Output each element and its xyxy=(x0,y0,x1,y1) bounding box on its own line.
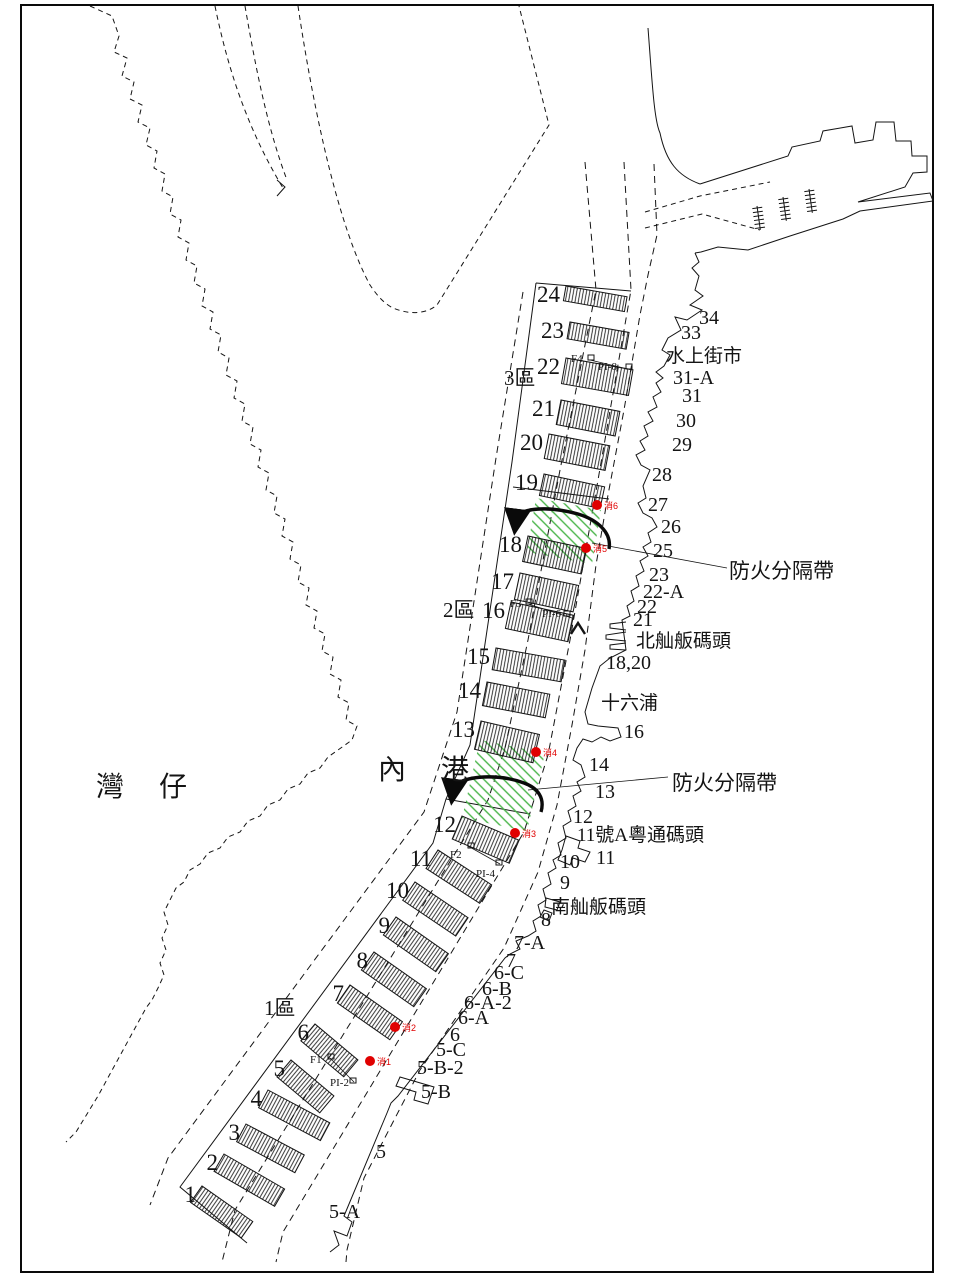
pier-number-label: 21 xyxy=(532,396,555,421)
channel-caret-mark xyxy=(571,623,585,634)
fire-hydrant-label: 消3 xyxy=(522,828,536,839)
shore-label: 8 xyxy=(541,909,551,931)
fire-hydrant-dot xyxy=(390,1022,400,1032)
pier-bar-7 xyxy=(337,985,402,1040)
shore-label: 27 xyxy=(648,494,668,516)
harbour-basin-dashed-outline xyxy=(298,6,549,313)
shore-label: 30 xyxy=(676,410,696,432)
shore-label: 9 xyxy=(560,872,570,894)
pier-bar-8 xyxy=(361,952,426,1007)
facility-label: F1 xyxy=(310,1054,322,1066)
fire-hydrant-dot xyxy=(365,1056,375,1066)
pier-number-label: 13 xyxy=(452,717,475,742)
pier-number-label: 6 xyxy=(298,1020,310,1045)
pier-number-label: 19 xyxy=(515,470,538,495)
shore-label: 北舢舨碼頭 xyxy=(636,630,731,652)
northeast-reclaimed-land-outline xyxy=(695,122,933,253)
facility-label: PI-2 xyxy=(330,1077,349,1089)
sea-area-label: 內 港 xyxy=(378,754,483,786)
pier-number-label: 12 xyxy=(433,812,456,837)
facility-label: F4 xyxy=(571,353,583,365)
pier-bar-14 xyxy=(482,682,549,718)
pier-number-label: 5 xyxy=(274,1056,286,1081)
facility-label: PI-8 xyxy=(598,361,617,373)
shore-label: 26 xyxy=(661,516,681,538)
fire-hydrant-label: 消1 xyxy=(377,1056,391,1067)
sea-area-label: 灣 仔 xyxy=(96,771,201,803)
wanzai-coastline xyxy=(66,6,357,1142)
pier-number-label: 11 xyxy=(410,846,432,871)
pier-bar-20 xyxy=(544,434,610,470)
shore-label: 18,20 xyxy=(606,652,651,674)
shore-label: 25 xyxy=(653,540,673,562)
pier-bar-6 xyxy=(301,1024,358,1077)
pier-number-label: 22 xyxy=(537,354,560,379)
shore-label: 11 xyxy=(596,847,615,869)
pier-number-label: 2 xyxy=(207,1150,219,1175)
pier-number-label: 24 xyxy=(537,282,561,307)
pier-number-label: 8 xyxy=(357,948,369,973)
fire-hydrant-dot xyxy=(592,500,602,510)
shore-label: 5 xyxy=(376,1141,386,1163)
shore-label: 5-A xyxy=(329,1201,361,1223)
harbour-plan-drawing: 2423222120191817161514131211109876543213… xyxy=(0,0,956,1283)
stairs-icon xyxy=(778,196,791,221)
facility-label: F2 xyxy=(450,849,462,861)
zone-label: 1區 xyxy=(264,996,296,1020)
channel-dashed-line-west xyxy=(215,6,283,188)
northeast-road-dashed-2 xyxy=(645,214,760,230)
shore-label: 28 xyxy=(652,464,672,486)
pier-bar-21 xyxy=(556,400,620,436)
pier-number-label: 18 xyxy=(499,532,522,557)
pier-bar-9 xyxy=(383,917,448,972)
shore-label: 5-B xyxy=(421,1081,451,1103)
pier-number-label: 17 xyxy=(491,569,514,594)
firebreak-label: 防火分隔帶 xyxy=(672,771,777,795)
facility-label: F3 xyxy=(510,598,522,610)
shore-label: 29 xyxy=(672,434,692,456)
shore-label: 16 xyxy=(624,721,644,743)
fire-hydrant-label: 消4 xyxy=(543,747,557,758)
firebreak-label: 防火分隔帶 xyxy=(729,559,834,583)
zone-label: 3區 xyxy=(504,366,536,390)
channel-end-hook xyxy=(277,180,285,196)
stairs-icon xyxy=(752,205,765,230)
shore-label: 十六浦 xyxy=(601,692,658,714)
facility-label: PI-4 xyxy=(476,868,495,880)
shore-label: 6-A xyxy=(458,1007,490,1029)
map-border xyxy=(21,5,933,1272)
fire-hydrant-label: 消2 xyxy=(402,1022,416,1033)
shore-label: 7-A xyxy=(514,932,546,954)
fire-hydrant-label: 消5 xyxy=(593,543,607,554)
channel-dashed-line-east xyxy=(245,6,287,180)
pier-number-label: 1 xyxy=(185,1182,197,1207)
pier-number-label: 4 xyxy=(251,1086,263,1111)
northeast-road-dashed-1 xyxy=(645,182,770,212)
pier-bar-3 xyxy=(237,1124,305,1173)
shore-label: 14 xyxy=(589,754,609,776)
valve-icon xyxy=(588,355,594,360)
pier-number-label: 20 xyxy=(520,430,543,455)
shore-label: 31 xyxy=(682,385,702,407)
shore-label: 34 xyxy=(699,307,719,329)
shore-label: 5-B-2 xyxy=(417,1057,464,1079)
pier-number-label: 23 xyxy=(541,318,564,343)
pier-number-label: 10 xyxy=(386,878,409,903)
stairs-icon xyxy=(804,188,817,213)
pier-number-label: 9 xyxy=(379,913,391,938)
fire-hydrant-dot xyxy=(510,828,520,838)
pier-number-label: 3 xyxy=(229,1120,241,1145)
shore-label: 33 xyxy=(681,322,701,344)
pier-bar-1 xyxy=(191,1186,253,1238)
inner-harbour-pier-map: 2423222120191817161514131211109876543213… xyxy=(0,0,956,1283)
pier-bar-10 xyxy=(403,882,468,936)
shore-label: 13 xyxy=(595,781,615,803)
pier-number-label: 15 xyxy=(467,644,490,669)
northeast-shore-curve xyxy=(648,28,700,184)
shore-label: 水上街市 xyxy=(666,345,742,367)
pier-bar-23 xyxy=(567,322,629,349)
facility-label: PI-6 xyxy=(542,608,561,620)
fire-hydrant-label: 消6 xyxy=(604,500,618,511)
fire-hydrant-dot xyxy=(531,747,541,757)
shore-label: 21 xyxy=(633,609,653,631)
shore-label: 10 xyxy=(560,851,580,873)
shore-label: 南舢舨碼頭 xyxy=(551,896,646,918)
zone-label: 2區 xyxy=(443,598,475,622)
fire-hydrant-dot xyxy=(581,543,591,553)
shore-label: 11號A粵通碼頭 xyxy=(577,824,704,846)
pier-number-label: 16 xyxy=(482,598,505,623)
pier-bar-15 xyxy=(492,648,565,682)
pier-number-label: 14 xyxy=(458,678,482,703)
pier-number-label: 7 xyxy=(333,981,345,1006)
